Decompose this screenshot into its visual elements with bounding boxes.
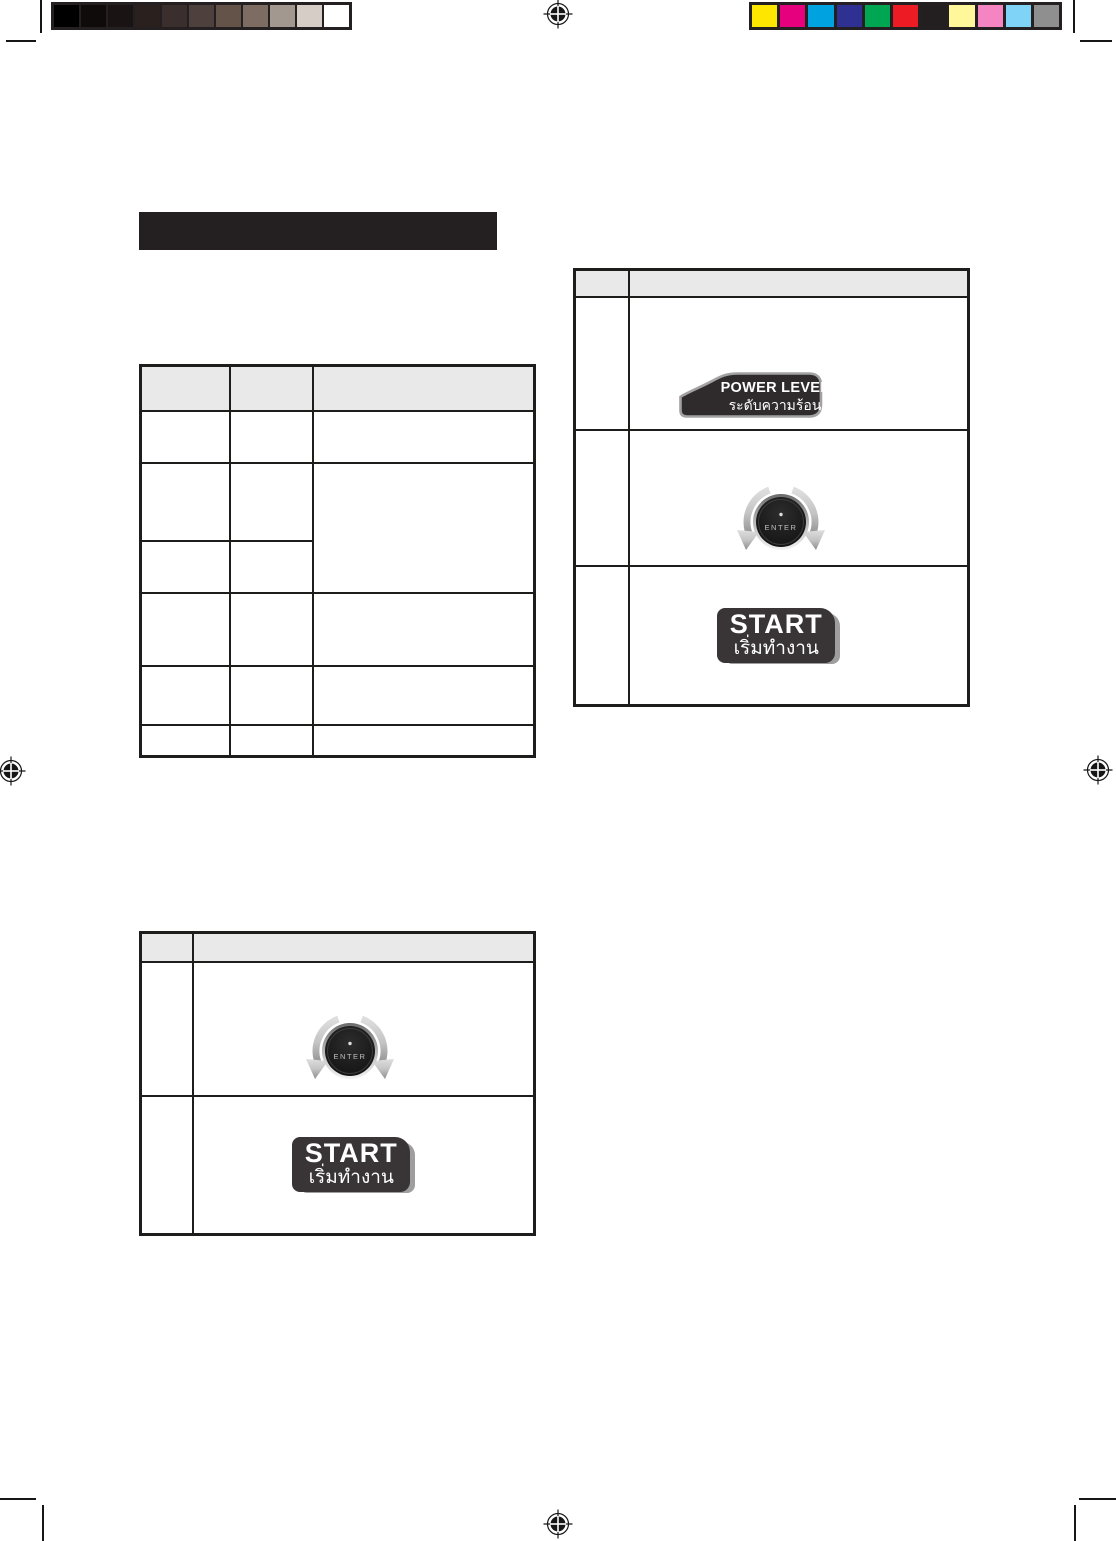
table-cell	[141, 541, 230, 593]
table-cell	[230, 411, 313, 463]
table-header-cell	[141, 366, 230, 411]
table-header-cell	[575, 270, 629, 297]
registration-mark-icon	[1083, 755, 1113, 785]
table-cell	[313, 725, 535, 757]
calibration-swatch	[243, 5, 268, 27]
calibration-swatch	[54, 5, 79, 27]
calibration-swatch	[949, 5, 974, 27]
table-header-cell	[313, 366, 535, 411]
step-content-cell: START เริ่มทำงาน	[629, 566, 969, 706]
table-cell	[230, 666, 313, 725]
calibration-swatch	[752, 5, 777, 27]
calibration-swatch	[1006, 5, 1031, 27]
crop-mark	[1074, 1505, 1076, 1541]
enter-dial-label: ENTER	[334, 1052, 367, 1061]
enter-dial-label: ENTER	[765, 523, 798, 532]
table-cell	[313, 411, 535, 463]
steps-table-right: POWER LEVEL ระดับความร้อน	[573, 268, 970, 707]
start-label-en: START	[305, 1140, 398, 1167]
calibration-swatch	[297, 5, 322, 27]
crop-mark	[1079, 1498, 1116, 1500]
crop-mark	[0, 1498, 36, 1500]
power-level-label-th: ระดับความร้อน	[729, 397, 822, 413]
calibration-swatch	[216, 5, 241, 27]
start-button: START เริ่มทำงาน	[292, 1137, 410, 1192]
calibration-swatch	[270, 5, 295, 27]
registration-mark-icon	[543, 0, 573, 29]
registration-mark-icon	[543, 1509, 573, 1539]
calibration-swatch	[978, 5, 1003, 27]
enter-dial: ENTER	[302, 1007, 398, 1091]
calibration-swatch	[324, 5, 349, 27]
crop-mark	[1073, 0, 1075, 33]
table-cell	[230, 593, 313, 666]
manual-page: POWER LEVEL ระดับความร้อน	[0, 0, 1116, 1541]
table-cell	[313, 666, 535, 725]
power-level-button: POWER LEVEL ระดับความร้อน	[675, 371, 825, 419]
calibration-swatch	[108, 5, 133, 27]
crop-mark	[42, 1505, 44, 1541]
steps-table-left: ENTER START เริ่มทำงาน	[139, 931, 536, 1236]
calibration-swatch	[81, 5, 106, 27]
table-cell	[313, 593, 535, 666]
step-number-cell	[141, 1096, 193, 1235]
grayscale-calibration-bar	[51, 2, 352, 30]
table-cell	[141, 666, 230, 725]
table-cell	[141, 725, 230, 757]
start-label-th: เริ่มทำงาน	[309, 1168, 394, 1189]
power-level-label-en: POWER LEVEL	[721, 380, 825, 396]
table-header-cell	[230, 366, 313, 411]
step-content-cell: START เริ่มทำงาน	[193, 1096, 535, 1235]
start-label-en: START	[730, 611, 823, 638]
calibration-swatch	[808, 5, 833, 27]
calibration-swatch	[865, 5, 890, 27]
table-cell-merged	[313, 463, 535, 593]
calibration-swatch	[837, 5, 862, 27]
step-content-cell: POWER LEVEL ระดับความร้อน	[629, 297, 969, 430]
section-title-bar	[139, 212, 497, 250]
table-header-cell	[193, 933, 535, 962]
crop-mark	[6, 40, 36, 42]
calibration-swatch	[189, 5, 214, 27]
table-cell	[230, 725, 313, 757]
power-level-reference-table	[139, 364, 536, 758]
table-cell	[141, 411, 230, 463]
calibration-swatch	[135, 5, 160, 27]
registration-mark-icon	[0, 756, 26, 786]
step-content-cell: ENTER	[193, 962, 535, 1096]
table-cell	[230, 463, 313, 541]
table-header-cell	[629, 270, 969, 297]
table-cell	[141, 593, 230, 666]
calibration-swatch	[162, 5, 187, 27]
start-button: START เริ่มทำงาน	[717, 608, 835, 663]
step-content-cell: ENTER	[629, 430, 969, 566]
step-number-cell	[141, 962, 193, 1096]
calibration-swatch	[780, 5, 805, 27]
table-header-cell	[141, 933, 193, 962]
table-cell	[141, 463, 230, 541]
crop-mark	[40, 0, 42, 33]
step-number-cell	[575, 566, 629, 706]
step-number-cell	[575, 430, 629, 566]
table-cell	[230, 541, 313, 593]
calibration-swatch	[921, 5, 946, 27]
step-number-cell	[575, 297, 629, 430]
crop-mark	[1080, 40, 1112, 42]
color-calibration-bar	[749, 2, 1062, 30]
enter-dial: ENTER	[733, 478, 829, 562]
start-label-th: เริ่มทำงาน	[734, 639, 819, 660]
calibration-swatch	[893, 5, 918, 27]
calibration-swatch	[1034, 5, 1059, 27]
